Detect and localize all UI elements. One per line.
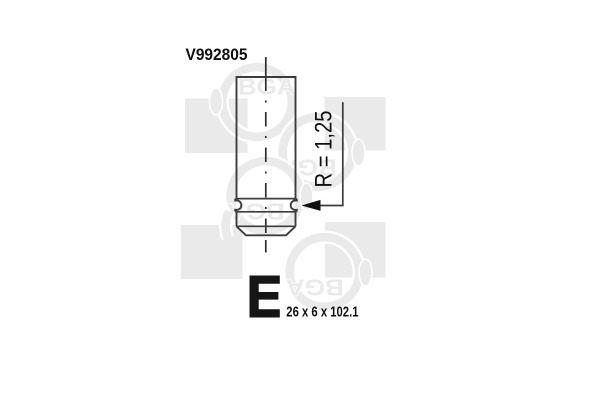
svg-text:R = 1,25: R = 1,25 — [310, 111, 337, 188]
svg-text:V992805: V992805 — [186, 46, 248, 64]
svg-text:26 x 6 x 102.1: 26 x 6 x 102.1 — [286, 303, 359, 320]
